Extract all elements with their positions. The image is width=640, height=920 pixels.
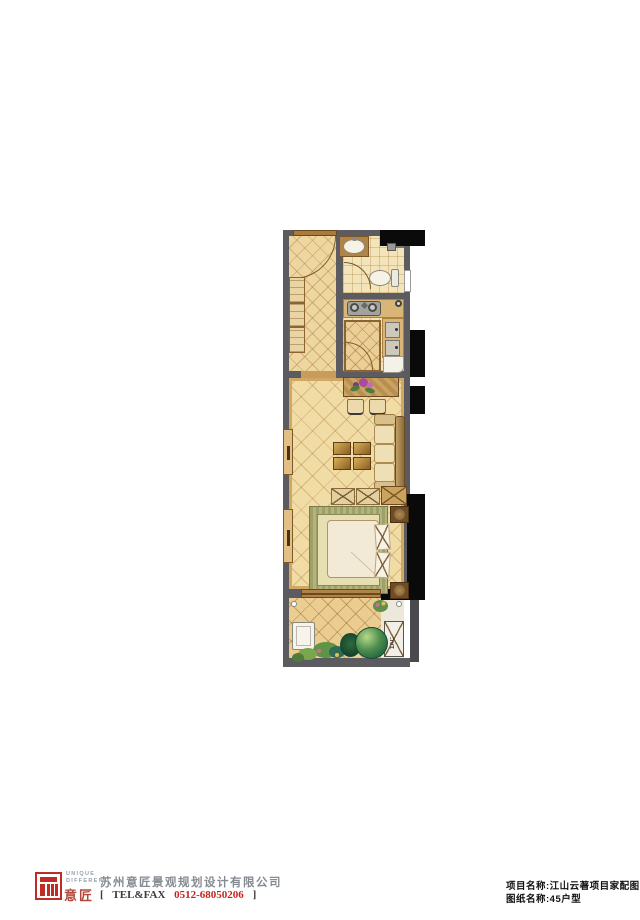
wall-living-stub [289,371,301,378]
coffee-table-sq-2 [353,442,371,455]
tel-number: 0512-68050206 [174,889,244,901]
fridge [383,356,404,373]
dining-chair-2 [369,399,386,415]
drain-circle-2 [396,601,402,607]
drawing-name-label: 图纸名称: [506,894,550,905]
coffee-table-sq-1 [333,442,351,455]
tel-bracket-close: ] [253,889,257,901]
corridor-threshold [301,371,336,378]
plant-flower-dot-1 [317,649,321,653]
shaft-bedroom-right [407,494,425,592]
logo-bar-top [40,877,57,882]
coffee-table-sq-4 [353,457,371,470]
pillow-2 [374,552,391,579]
drain-circle-1 [291,601,297,607]
wardrobe-box-3 [381,486,407,505]
sofa-cushion-3 [374,463,395,482]
logo-brand-text: 意匠 [64,885,94,904]
tel-line: [ TEL&FAX 0512-68050206 ] [100,889,256,901]
burner-right [368,303,377,312]
footer: UNIQUE DIFFERENT 意匠 苏州意匠景观规划设计有限公司 [ TEL… [0,860,640,920]
nightstand-lamp-1 [394,509,405,520]
pillow-1 [374,524,391,551]
entry-closet-3 [289,327,305,353]
sink-faucet-dot-1 [395,328,398,331]
balcony-sliding-door [301,589,381,598]
logo-block-right [47,884,58,896]
plant-flower-dot-2 [335,653,339,657]
wall-balcony-right [410,592,419,662]
sofa-armrest-top [374,414,396,425]
sofa-backrest [395,416,405,490]
kitchen-corner-fitting [395,300,402,307]
wall-bedroom-balcony-stub [283,589,301,598]
entry-closet-1 [289,277,305,303]
toilet-tank [391,269,399,287]
living-window-handle [287,446,290,460]
shower-head-icon [387,243,396,251]
drawing-name-value: 45户型 [550,894,582,905]
plant-bush-big [355,627,388,659]
sofa-cushion-1 [374,425,395,444]
logo-bar-left [40,884,45,896]
project-name-line: 项目名称:江山云著项目家配图 [506,878,640,892]
sink-faucet-dot-2 [395,346,398,349]
wardrobe-box-2 [356,488,380,505]
wardrobe-box-1 [331,488,355,505]
burner-left [350,303,359,312]
basin-faucet [352,237,357,241]
plant-small-left [292,653,304,662]
logo-text-unique: UNIQUE [66,871,95,877]
dining-chair-1 [347,399,364,415]
tel-bracket-open: [ [100,889,104,901]
shaft-kitchen-right [410,330,425,377]
sofa-cushion-2 [374,444,395,463]
floor-plan: 1AC [283,230,425,667]
company-name: 苏州意匠景观规划设计有限公司 [100,874,282,890]
toilet-bowl [369,270,391,286]
shower-arm [396,246,404,248]
coffee-table-sq-3 [333,457,351,470]
sink-basin [343,239,365,254]
drawing-name-line: 图纸名称:45户型 [506,891,581,905]
company-logo-icon [35,872,62,900]
entry-closet-2 [289,303,305,327]
tel-label: TEL&FAX [112,889,165,901]
plant-flowers-corner [373,600,388,612]
bathroom-window [404,270,411,292]
washing-machine-door [296,626,311,646]
nightstand-lamp-2 [394,585,405,596]
shaft-dining-right [410,386,425,414]
bedroom-window-handle [287,530,290,546]
ac-unit-label: 1AC [390,629,398,649]
